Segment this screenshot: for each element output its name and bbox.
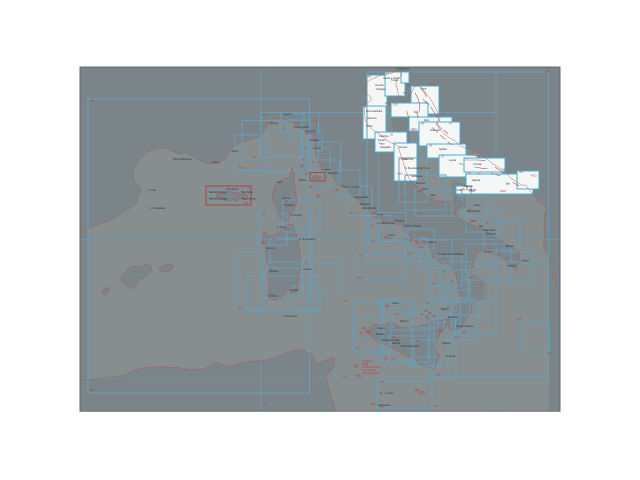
svg-text:Zara: Zara [424, 119, 430, 122]
svg-text:Chioggia: Chioggia [376, 88, 386, 91]
svg-text:Vasto: Vasto [430, 194, 437, 197]
svg-text:4571: 4571 [430, 83, 436, 87]
svg-text:Sebenico: Sebenico [430, 129, 441, 132]
svg-text:Ajaccio: Ajaccio [282, 197, 290, 200]
svg-text:Milazzo: Milazzo [441, 308, 450, 311]
svg-text:295: 295 [468, 277, 473, 280]
svg-text:Pescara: Pescara [416, 182, 425, 185]
svg-text:Fiumicino: Fiumicino [360, 203, 371, 206]
svg-text:Nizza: Nizza [232, 150, 239, 153]
svg-text:258: 258 [438, 329, 443, 333]
svg-text:435: 435 [546, 70, 551, 74]
svg-text:Livorno: Livorno [313, 147, 322, 150]
svg-text:Trieste: Trieste [391, 79, 399, 82]
svg-text:La Spezia: La Spezia [305, 130, 316, 133]
svg-text:G. di Terranova: G. di Terranova [299, 238, 316, 241]
svg-text:435: 435 [342, 375, 347, 379]
svg-text:Curzola: Curzola [473, 163, 482, 166]
svg-text:Ravenna: Ravenna [367, 117, 377, 120]
svg-text:112: 112 [404, 237, 409, 241]
svg-text:S. Benedetto del Tronto: S. Benedetto del Tronto [405, 167, 431, 170]
svg-text:418: 418 [238, 166, 243, 170]
svg-text:Cagliari: Cagliari [290, 289, 299, 292]
svg-text:Manfredonia: Manfredonia [467, 210, 481, 213]
svg-text:Follonica: Follonica [328, 172, 338, 175]
svg-text:919: 919 [417, 213, 422, 216]
svg-text:C. Spartivento: C. Spartivento [282, 315, 298, 318]
svg-text:Bari: Bari [479, 225, 484, 228]
svg-text:Messina: Messina [448, 316, 458, 319]
svg-text:Porto S. Stefano: Porto S. Stefano [342, 186, 360, 189]
svg-text:Carloforte: Carloforte [268, 295, 279, 298]
svg-text:Pta del Rascassa: Pta del Rascassa [173, 158, 192, 161]
svg-text:Trani: Trani [470, 220, 476, 223]
svg-text:121: 121 [349, 212, 354, 215]
svg-text:Ancona: Ancona [399, 146, 408, 149]
svg-text:Tolone: Tolone [212, 161, 220, 164]
svg-text:Brindisi: Brindisi [506, 245, 514, 248]
svg-text:Ustica: Ustica [392, 302, 399, 305]
svg-text:270: 270 [395, 327, 400, 330]
svg-text:Esso di lamantik: Esso di lamantik [362, 372, 380, 375]
svg-text:3910: 3910 [500, 189, 506, 193]
svg-text:Taranto: Taranto [484, 251, 493, 254]
svg-text:Porto Empedocle: Porto Empedocle [401, 345, 420, 348]
svg-text:Catania: Catania [442, 342, 451, 345]
svg-text:Spalato: Spalato [439, 148, 448, 151]
svg-text:606: 606 [244, 202, 249, 205]
svg-text:194: 194 [380, 380, 385, 384]
svg-text:410: 410 [359, 254, 364, 258]
svg-text:140: 140 [261, 242, 266, 245]
svg-text:Trapani: Trapani [377, 327, 385, 330]
svg-text:916: 916 [401, 199, 406, 202]
svg-text:Ragusa: Ragusa [472, 179, 481, 182]
svg-text:Propriano: Propriano [284, 204, 295, 207]
svg-text:130: 130 [407, 253, 412, 256]
svg-text:Venezia: Venezia [375, 84, 384, 87]
svg-text:I. Linosa: I. Linosa [385, 392, 395, 395]
svg-text:C. Orsa: C. Orsa [148, 189, 157, 192]
svg-text:201: 201 [519, 170, 524, 174]
svg-text:Salerno: Salerno [428, 241, 437, 244]
svg-text:Cattolica: Cattolica [379, 135, 389, 138]
svg-text:Genova: Genova [283, 113, 292, 116]
svg-text:Marsala: Marsala [376, 333, 385, 336]
svg-text:254: 254 [395, 312, 400, 316]
svg-text:100: 100 [393, 103, 398, 107]
svg-text:Siracusa: Siracusa [446, 355, 456, 358]
svg-text:Gallipoli: Gallipoli [507, 265, 516, 268]
svg-text:275: 275 [426, 319, 431, 322]
svg-text:251: 251 [355, 348, 360, 351]
svg-text:250: 250 [238, 307, 243, 310]
svg-text:Otranto: Otranto [521, 260, 530, 263]
svg-text:438: 438 [355, 373, 360, 377]
svg-text:Fiume: Fiume [420, 88, 427, 91]
svg-text:434: 434 [262, 403, 267, 407]
svg-text:415: 415 [296, 121, 301, 125]
svg-text:Porto Garibaldi: Porto Garibaldi [366, 110, 382, 113]
svg-text:I. Pelagosa: I. Pelagosa [464, 189, 477, 192]
svg-text:260: 260 [436, 374, 441, 377]
svg-text:135: 135 [359, 277, 364, 280]
svg-text:417: 417 [252, 155, 257, 159]
svg-text:C. S. Sebastian: C. S. Sebastian [149, 207, 166, 210]
svg-text:Ortona: Ortona [421, 188, 429, 191]
svg-text:257: 257 [416, 339, 421, 343]
svg-text:252: 252 [384, 358, 389, 361]
svg-text:S. Maria di Castellabate: S. Maria di Castellabate [438, 253, 464, 256]
svg-text:6214: 6214 [397, 172, 403, 176]
svg-text:Alghero: Alghero [266, 247, 275, 250]
svg-text:Civitavecchia: Civitavecchia [354, 196, 369, 199]
svg-text:P. Torres: P. Torres [277, 226, 287, 229]
svg-text:Porto Azzurro: Porto Azzurro [242, 198, 257, 201]
svg-text:4822: 4822 [411, 127, 417, 131]
svg-text:413: 413 [371, 211, 376, 215]
svg-text:Terracina: Terracina [394, 220, 405, 223]
svg-text:Rio Marina: Rio Marina [242, 191, 254, 194]
svg-text:Monfalcone: Monfalcone [397, 68, 410, 71]
svg-text:Ponza: Ponza [388, 234, 395, 237]
svg-text:Monopoli: Monopoli [486, 233, 496, 236]
svg-text:Viareggio: Viareggio [309, 139, 320, 142]
svg-text:430: 430 [90, 99, 95, 103]
svg-text:324: 324 [261, 212, 266, 216]
svg-text:Gaeta e Formia: Gaeta e Formia [404, 225, 421, 228]
svg-text:4021: 4021 [531, 174, 537, 178]
svg-text:403: 403 [313, 119, 318, 123]
svg-text:Sestri Levante: Sestri Levante [294, 126, 310, 129]
svg-text:Savona: Savona [270, 122, 279, 125]
svg-text:Bastia: Bastia [299, 179, 306, 182]
svg-text:Lido di Roma: Lido di Roma [362, 207, 377, 210]
svg-text:512: 512 [355, 276, 360, 280]
svg-text:S. Felice Circeo: S. Felice Circeo [377, 222, 395, 225]
svg-text:Marina di Campo: Marina di Campo [209, 198, 228, 201]
svg-text:913: 913 [547, 351, 552, 355]
svg-text:280: 280 [454, 337, 459, 340]
svg-text:911: 911 [454, 213, 458, 216]
svg-text:290: 290 [462, 332, 467, 335]
svg-text:914: 914 [432, 283, 437, 286]
svg-text:912: 912 [517, 317, 522, 321]
svg-text:Senigallia: Senigallia [380, 146, 391, 149]
svg-text:414: 414 [263, 113, 268, 117]
svg-text:Anzio: Anzio [377, 214, 384, 217]
svg-text:265: 265 [391, 359, 396, 362]
svg-text:Lampedusa: Lampedusa [378, 404, 391, 407]
svg-text:423: 423 [433, 404, 438, 408]
svg-text:Lesina: Lesina [449, 159, 457, 162]
svg-text:Marciana Marina: Marciana Marina [209, 191, 227, 194]
svg-text:Civitanova: Civitanova [402, 158, 414, 161]
svg-text:432: 432 [90, 388, 95, 392]
svg-text:P. Vecchio: P. Vecchio [291, 214, 303, 217]
svg-text:Sciacca: Sciacca [392, 342, 401, 345]
svg-text:Arbatax: Arbatax [303, 268, 312, 271]
svg-text:255: 255 [366, 329, 371, 333]
svg-text:Rimini: Rimini [366, 125, 373, 128]
svg-text:Palermo: Palermo [400, 320, 410, 323]
svg-text:Calvi: Calvi [277, 181, 283, 184]
svg-text:Reggio Calabria: Reggio Calabria [456, 325, 474, 328]
svg-text:300: 300 [486, 247, 491, 250]
svg-text:Vieste: Vieste [474, 204, 481, 207]
svg-text:Oristano: Oristano [269, 270, 279, 273]
svg-text:125: 125 [371, 241, 376, 244]
svg-text:Giulianova: Giulianova [411, 175, 423, 178]
svg-text:Rab: Rab [414, 111, 419, 114]
svg-text:Bar: Bar [506, 183, 510, 186]
svg-text:Portoferraio: Portoferraio [226, 188, 239, 191]
svg-text:124: 124 [343, 299, 348, 303]
